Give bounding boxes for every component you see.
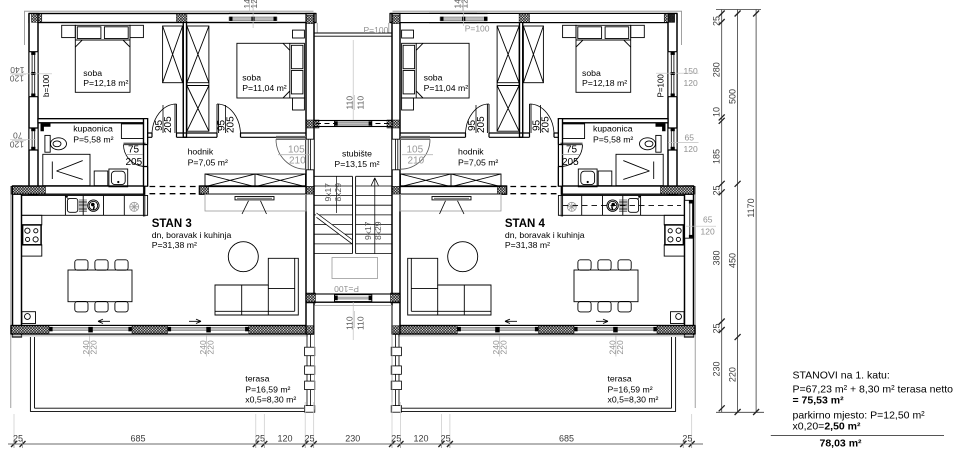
svg-text:8x29: 8x29	[333, 183, 343, 202]
svg-text:25: 25	[441, 434, 451, 444]
svg-text:terasa: terasa	[245, 374, 269, 384]
svg-text:120: 120	[10, 140, 24, 150]
svg-text:soba: soba	[242, 73, 261, 83]
svg-text:220: 220	[499, 340, 509, 354]
svg-text:kupaonica: kupaonica	[593, 124, 633, 134]
svg-text:25: 25	[304, 434, 314, 444]
svg-text:25: 25	[13, 434, 23, 444]
svg-text:= 75,53 m²: = 75,53 m²	[793, 395, 845, 407]
svg-text:110: 110	[355, 316, 365, 330]
svg-text:78,03 m²: 78,03 m²	[820, 438, 863, 450]
svg-text:75: 75	[566, 145, 578, 156]
svg-text:P=12,18 m²: P=12,18 m²	[83, 78, 128, 88]
svg-text:P=100: P=100	[657, 74, 666, 98]
svg-text:P=11,04 m²: P=11,04 m²	[242, 83, 287, 93]
svg-text:dn, boravak i kuhinja: dn, boravak i kuhinja	[152, 230, 232, 240]
svg-text:P=7,05 m²: P=7,05 m²	[188, 158, 228, 168]
svg-text:P=100: P=100	[465, 24, 490, 34]
svg-text:P=13,15 m²: P=13,15 m²	[334, 159, 379, 169]
svg-text:25: 25	[712, 16, 722, 26]
svg-text:220: 220	[727, 367, 737, 382]
svg-text:STAN 3: STAN 3	[152, 218, 192, 230]
svg-text:b=100: b=100	[42, 74, 51, 97]
svg-text:x0,5=8,30 m²: x0,5=8,30 m²	[608, 395, 659, 405]
svg-text:P=16,59 m²: P=16,59 m²	[245, 385, 290, 395]
svg-text:9x17: 9x17	[363, 221, 373, 240]
svg-text:P=7,05 m²: P=7,05 m²	[458, 158, 498, 168]
svg-text:P=16,59 m²: P=16,59 m²	[608, 385, 653, 395]
svg-text:25: 25	[712, 185, 722, 195]
svg-text:105: 105	[407, 145, 424, 156]
svg-text:70: 70	[13, 131, 23, 141]
svg-text:P=100: P=100	[334, 284, 359, 294]
svg-text:120: 120	[277, 434, 292, 444]
svg-text:220: 220	[615, 340, 625, 354]
svg-text:P=11,04 m²: P=11,04 m²	[424, 83, 469, 93]
svg-text:500: 500	[727, 89, 737, 104]
svg-text:205: 205	[225, 116, 236, 133]
svg-text:9x17: 9x17	[323, 183, 333, 202]
svg-text:kupaonica: kupaonica	[73, 124, 113, 134]
svg-text:65: 65	[703, 215, 713, 225]
svg-text:120: 120	[701, 227, 715, 237]
svg-text:110: 110	[344, 96, 354, 110]
svg-text:120: 120	[413, 434, 428, 444]
svg-text:205: 205	[163, 116, 174, 133]
svg-text:685: 685	[559, 434, 574, 444]
svg-text:120: 120	[684, 78, 698, 88]
svg-text:25: 25	[682, 434, 692, 444]
svg-text:25: 25	[391, 434, 401, 444]
svg-text:P=100: P=100	[364, 25, 389, 35]
svg-text:8x29: 8x29	[373, 221, 383, 240]
svg-text:soba: soba	[83, 68, 102, 78]
svg-text:150: 150	[684, 66, 698, 76]
svg-text:65: 65	[685, 133, 695, 143]
svg-text:soba: soba	[424, 73, 443, 83]
svg-text:P=31,38 m²: P=31,38 m²	[505, 240, 550, 250]
svg-text:185: 185	[712, 149, 722, 164]
svg-text:terasa: terasa	[608, 374, 632, 384]
svg-text:110: 110	[344, 316, 354, 330]
svg-text:380: 380	[712, 250, 722, 265]
svg-text:120: 120	[10, 74, 24, 84]
svg-text:450: 450	[727, 253, 737, 268]
svg-text:280: 280	[712, 62, 722, 77]
svg-text:P=5,58 m²: P=5,58 m²	[593, 135, 633, 145]
svg-text:x0,20=2,50 m²: x0,20=2,50 m²	[793, 421, 862, 433]
svg-text:110: 110	[355, 96, 365, 110]
svg-text:220: 220	[206, 340, 216, 354]
svg-text:205: 205	[540, 116, 551, 133]
svg-text:hodnik: hodnik	[188, 147, 214, 157]
svg-text:P=5,58 m²: P=5,58 m²	[73, 135, 113, 145]
svg-text:230: 230	[712, 361, 722, 376]
svg-text:75: 75	[128, 145, 140, 156]
svg-text:P=12,18 m²: P=12,18 m²	[582, 78, 627, 88]
svg-text:10: 10	[712, 107, 722, 117]
svg-text:210: 210	[289, 156, 306, 167]
svg-text:210: 210	[408, 156, 425, 167]
svg-text:205: 205	[126, 157, 143, 168]
svg-text:x0,5=8,30 m²: x0,5=8,30 m²	[245, 395, 296, 405]
svg-text:STAN 4: STAN 4	[505, 218, 546, 230]
svg-text:685: 685	[130, 434, 145, 444]
svg-text:25: 25	[255, 434, 265, 444]
svg-text:120: 120	[460, 0, 470, 9]
svg-text:105: 105	[288, 145, 305, 156]
svg-text:P=31,38 m²: P=31,38 m²	[152, 240, 197, 250]
svg-text:1170: 1170	[746, 198, 756, 217]
svg-text:205: 205	[562, 157, 579, 168]
svg-text:205: 205	[476, 116, 487, 133]
svg-text:dn, boravak i kuhinja: dn, boravak i kuhinja	[505, 230, 585, 240]
svg-text:220: 220	[89, 340, 99, 354]
svg-text:25: 25	[712, 323, 722, 333]
svg-text:120: 120	[249, 0, 259, 9]
svg-text:120: 120	[684, 144, 698, 154]
svg-text:230: 230	[345, 434, 360, 444]
svg-text:stubište: stubište	[342, 149, 372, 159]
svg-text:STANOVI na 1. katu:: STANOVI na 1. katu:	[793, 370, 890, 382]
svg-text:soba: soba	[582, 68, 601, 78]
svg-text:hodnik: hodnik	[458, 147, 484, 157]
